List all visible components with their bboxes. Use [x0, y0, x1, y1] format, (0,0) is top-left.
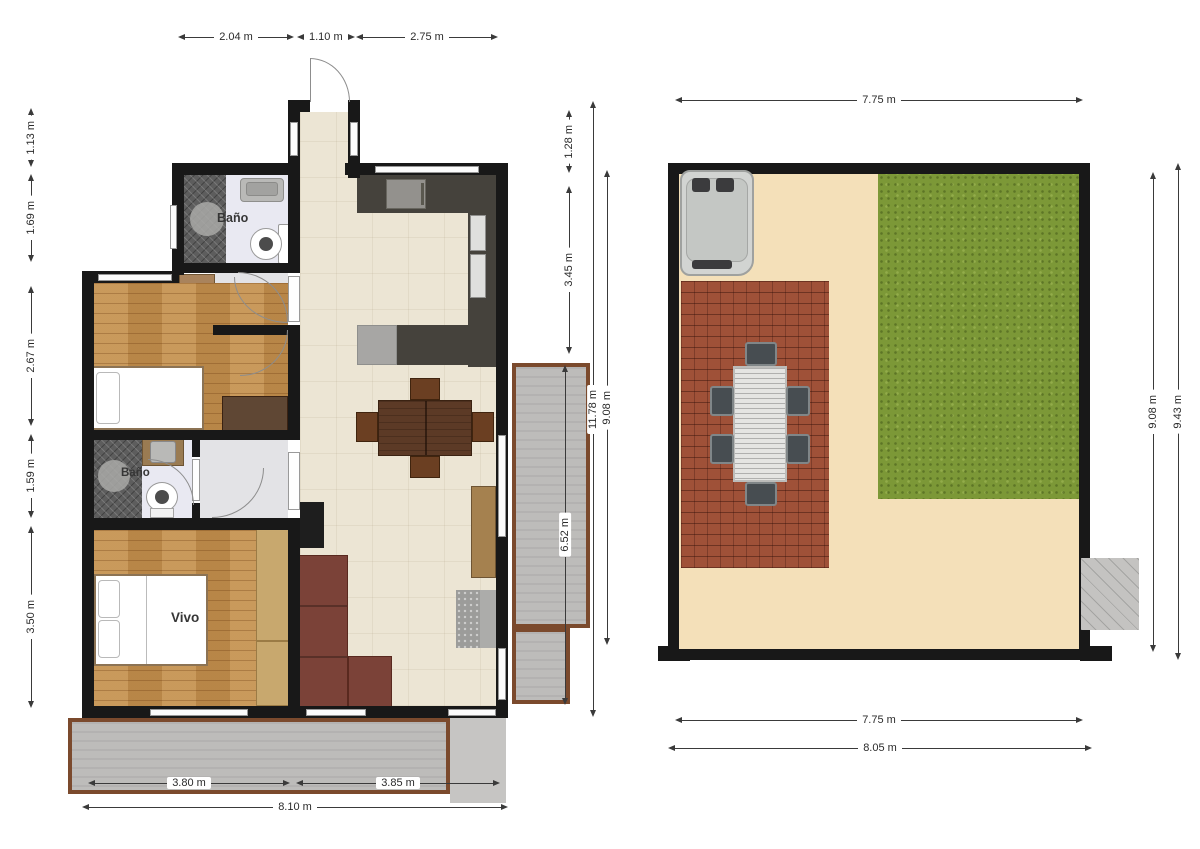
dimension: 2.75 m: [356, 30, 498, 44]
porch-step: [450, 718, 506, 803]
dining-chair: [472, 412, 494, 442]
dimension: 2.04 m: [178, 30, 294, 44]
stove-knobs: [421, 183, 424, 205]
hot-tub-headrest: [716, 178, 734, 192]
wall: [82, 430, 300, 440]
hot-tub-step: [692, 260, 732, 269]
window: [498, 435, 506, 537]
dimension: 6.52 m: [558, 365, 572, 705]
dimension: 1.10 m: [297, 30, 354, 44]
sofa-section: [298, 555, 348, 707]
dimension: 1.13 m: [24, 108, 38, 167]
dimension: 1.59 m: [24, 434, 38, 518]
yard-plan: 7.75 m 9.08 m 9.43 m 7.75 m 8.05 m: [620, 0, 1200, 849]
kitchen-counter-bottom: [395, 325, 496, 365]
door-frame: [192, 459, 200, 501]
yard-corner-post: [1080, 646, 1112, 661]
outdoor-chair: [745, 342, 777, 366]
dimension: 9.08 m: [1146, 172, 1160, 652]
dimension: 1.28 m: [562, 110, 576, 173]
toilet-bowl-center: [259, 237, 273, 251]
dimension: 11.78 m: [586, 101, 600, 717]
fridge: [357, 325, 397, 365]
wall: [172, 163, 300, 175]
dimension: 8.10 m: [82, 800, 508, 814]
door-frame: [288, 276, 300, 322]
oven: [470, 215, 486, 251]
bedroom-dresser: [222, 396, 288, 432]
window: [375, 166, 479, 173]
sofa-chaise: [348, 656, 392, 708]
sink-basin: [246, 182, 278, 196]
door-frame: [288, 452, 300, 510]
window: [498, 648, 506, 700]
dining-table: [378, 400, 472, 456]
side-terrace: [512, 363, 590, 628]
outdoor-chair: [710, 386, 734, 416]
dimension: 3.50 m: [24, 526, 38, 708]
dimension: 8.05 m: [668, 741, 1092, 755]
room-label-vivo: Vivo: [171, 610, 199, 625]
outdoor-chair: [786, 386, 810, 416]
wall: [82, 518, 300, 530]
wall: [288, 325, 300, 432]
wall: [82, 271, 94, 718]
rug-pattern: [456, 590, 480, 648]
dimension: 2.67 m: [24, 286, 38, 426]
dimension: 7.75 m: [675, 713, 1083, 727]
dimension: 3.80 m: [88, 776, 290, 790]
window: [350, 122, 358, 156]
window: [306, 709, 366, 716]
house-plan: Baño Baño Vivo 2.04 m 1.10 m 2.75 m 1.13…: [0, 0, 620, 849]
dimension: 7.75 m: [675, 93, 1083, 107]
wardrobe-shelf-line: [256, 640, 292, 642]
room-label-bath-top: Baño: [217, 211, 248, 225]
outdoor-chair: [745, 482, 777, 506]
window: [150, 709, 248, 716]
wall: [192, 503, 200, 518]
wardrobe: [256, 528, 292, 706]
stove-icon: [386, 179, 426, 209]
window: [98, 274, 172, 281]
dining-chair: [410, 378, 440, 400]
wall: [288, 166, 300, 273]
wall: [288, 518, 300, 718]
dining-chair: [410, 456, 440, 478]
dishwasher: [470, 254, 486, 298]
floorplan-canvas: Baño Baño Vivo 2.04 m 1.10 m 2.75 m 1.13…: [0, 0, 1200, 849]
tv-unit: [300, 502, 324, 548]
wall: [192, 440, 200, 457]
dimension: 3.85 m: [296, 776, 500, 790]
dimension: 1.69 m: [24, 174, 38, 262]
window: [448, 709, 496, 716]
window: [170, 205, 177, 249]
dimension: 9.43 m: [1171, 163, 1185, 660]
door-arc: [310, 58, 350, 102]
outdoor-chair: [710, 434, 734, 464]
pillow: [96, 372, 120, 424]
outdoor-stairs: [1081, 558, 1139, 630]
hot-tub-headrest: [692, 178, 710, 192]
pillow: [98, 580, 120, 618]
wall: [172, 263, 300, 273]
outdoor-table: [733, 366, 787, 482]
toilet-base: [150, 508, 174, 518]
window: [290, 122, 298, 156]
room-label-bath-mid: Baño: [121, 467, 150, 479]
dimension: 3.45 m: [562, 186, 576, 354]
pillow: [98, 620, 120, 658]
dimension: 9.08 m: [600, 170, 614, 645]
sideboard: [471, 486, 496, 578]
dining-chair: [356, 412, 378, 442]
wall: [82, 706, 508, 718]
outdoor-chair: [786, 434, 810, 464]
wall: [288, 100, 310, 112]
vestibule-floor: [300, 112, 348, 178]
lawn: [878, 174, 1079, 499]
